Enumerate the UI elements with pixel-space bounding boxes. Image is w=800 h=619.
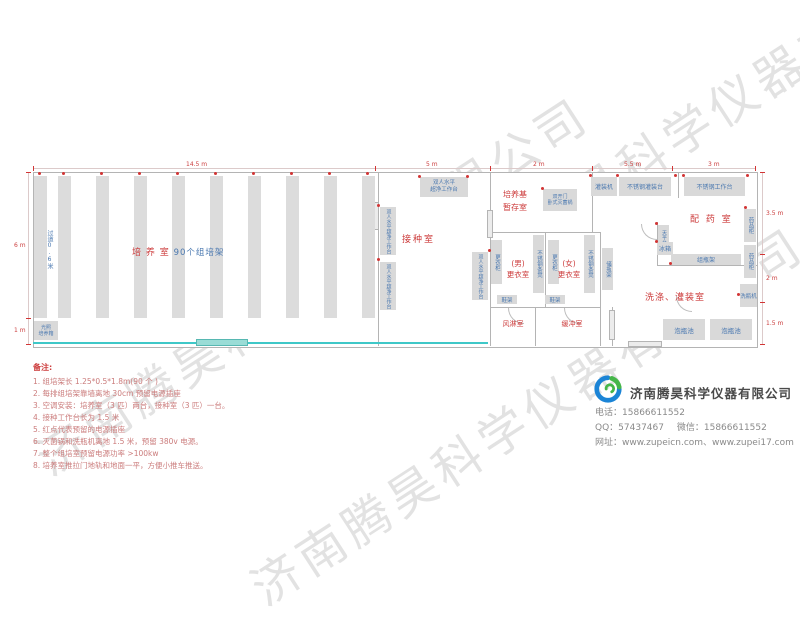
locker-male: 更衣柜 xyxy=(491,240,502,284)
note-item: 8. 培养室推拉门地轨和地面一平，方便小推车推送。 xyxy=(33,460,229,472)
front-glass-wall xyxy=(33,342,488,344)
double-door-autoclave: 双开门 卧式灭菌锅 xyxy=(543,189,577,211)
light-incubator: 光照 培养箱 xyxy=(34,321,58,340)
company-qq-wechat: QQ：57437467 微信：15866611552 xyxy=(595,420,767,433)
shoe-rack-male: 鞋架 xyxy=(497,295,517,304)
dim-right-washing: 2 m xyxy=(766,275,778,282)
clean-bench-right: 双人水平超净工作台 xyxy=(472,252,488,300)
culture-rack xyxy=(58,176,71,318)
bench-male: 不锈钢条凳 xyxy=(533,235,544,293)
air-shower-label: 风淋室 xyxy=(495,319,531,329)
female-changing-line1: (女) xyxy=(553,258,585,269)
note-item: 3. 空调安装：培养室（3 匹）两台，接种室（3 匹）一台。 xyxy=(33,400,229,412)
stainless-work-table: 不锈钢工作台 xyxy=(684,177,745,196)
medium-storage-label: 培养基 暂存室 xyxy=(494,188,536,214)
medium-storage-line2: 暂存室 xyxy=(494,201,536,214)
company-name: 济南腾昊科学仪器有限公司 xyxy=(630,383,792,402)
note-item: 1. 组培架长 1.25*0.5*1.8m(90 个 ) xyxy=(33,376,229,388)
dim-top-culture: 14.5 m xyxy=(186,161,207,168)
male-changing-label: (男) 更衣室 xyxy=(502,258,534,280)
dim-left-corridor: 1 m xyxy=(14,327,26,334)
stainless-filling-table: 不锈钢灌装台 xyxy=(619,177,671,196)
culture-rack xyxy=(96,176,109,318)
shoe-rack-female: 鞋架 xyxy=(545,295,565,304)
door-corridor xyxy=(609,310,615,340)
dim-top-filling: 5.5 m xyxy=(624,161,641,168)
drawing-sheet: { "watermark": { "text": "济南腾昊科学仪器有限公司" … xyxy=(0,0,800,600)
door-washing-south xyxy=(628,341,662,347)
notes-block: 备注: 1. 组培架长 1.25*0.5*1.8m(90 个 ) 2. 每排组培… xyxy=(33,362,229,472)
buffer-room-label: 缓冲室 xyxy=(552,319,592,329)
culture-room-label: 培 养 室 90个组培架 xyxy=(132,245,224,258)
note-item: 2. 每排组培架靠墙离地 30cm 预留电源插座 xyxy=(33,388,229,400)
inoculation-room-label: 接种室 xyxy=(402,232,435,245)
company-phone: 电话：15866611552 xyxy=(595,405,685,418)
male-changing-line1: (男) xyxy=(502,258,534,269)
company-web: 网址：www.zupeicn.com、www.zupei17.com xyxy=(595,435,794,448)
culture-rack xyxy=(286,176,299,318)
filling-machine: 灌装机 xyxy=(591,177,617,196)
light-incubator-line2: 培养箱 xyxy=(38,331,53,337)
washing-room-label: 洗涤、灌装室 xyxy=(645,290,705,303)
dim-top-storage: 2 m xyxy=(533,161,545,168)
note-item: 6. 灭菌锅和洗瓶机离地 1.5 米，预留 380v 电源。 xyxy=(33,436,229,448)
dim-top-inoculation: 5 m xyxy=(426,161,438,168)
dimension-line-top xyxy=(33,168,756,169)
clean-bench-left-1: 双人水平超净工作台 xyxy=(380,207,396,255)
dim-left-room: 6 m xyxy=(14,242,26,249)
culture-rack-count: 90个组培架 xyxy=(174,248,225,258)
notes-title: 备注: xyxy=(33,362,229,374)
web-label: 网址： xyxy=(595,438,622,448)
web-urls: www.zupeicn.com、www.zupei17.com xyxy=(622,438,794,448)
medicine-cabinet-2: 药品柜 xyxy=(744,245,756,278)
female-changing-label: (女) 更衣室 xyxy=(553,258,585,280)
medicine-cabinet-1: 药品柜 xyxy=(744,209,756,242)
culture-rack xyxy=(248,176,261,318)
bench-female: 不锈钢条凳 xyxy=(584,235,595,293)
aisle-width-label: 过道0.6米 xyxy=(45,230,53,282)
bottle-storage-rack: 储瓶架 xyxy=(602,248,613,290)
clean-bench-line1: 双人水平 xyxy=(433,180,455,187)
female-changing-line2: 更衣室 xyxy=(553,269,585,280)
soak-pool-2: 泡瓶池 xyxy=(710,319,752,340)
door-inoculation-east xyxy=(487,210,493,238)
preparation-room-label: 配 药 室 xyxy=(690,212,733,225)
medium-storage-line1: 培养基 xyxy=(494,188,536,201)
culture-rack xyxy=(362,176,375,318)
bottle-washer: 洗瓶机 xyxy=(740,284,757,307)
wechat-number: 15866611552 xyxy=(704,423,767,433)
note-item: 5. 红点代表预留的电源插座 xyxy=(33,424,229,436)
culture-rack xyxy=(324,176,337,318)
dim-right-prep: 3.5 m xyxy=(766,210,783,217)
culture-room-name: 培 养 室 xyxy=(132,248,170,258)
clean-bench-top: 双人水平 超净工作台 xyxy=(420,177,468,197)
qq-label: QQ： xyxy=(595,423,618,433)
wechat-label: 微信： xyxy=(677,423,704,433)
male-changing-line2: 更衣室 xyxy=(502,269,534,280)
autoclave-line2: 卧式灭菌锅 xyxy=(547,200,572,207)
sliding-door xyxy=(196,339,248,346)
qq-number: 57437467 xyxy=(618,423,664,433)
soak-pool-1: 泡瓶池 xyxy=(663,319,705,340)
clean-bench-left-2: 双人水平超净工作台 xyxy=(380,262,396,310)
note-item: 7. 整个组培室预留电源功率 >100kw xyxy=(33,448,229,460)
dim-right-pool: 1.5 m xyxy=(766,320,783,327)
dimension-line-right xyxy=(762,172,763,345)
phone-label: 电话： xyxy=(595,408,622,418)
dimension-line-left xyxy=(28,172,29,345)
company-logo-icon xyxy=(593,374,623,404)
dim-top-preparation: 3 m xyxy=(708,161,720,168)
culture-bottle-rack: 组瓶架 xyxy=(671,254,741,265)
clean-bench-line2: 超净工作台 xyxy=(430,187,458,194)
note-item: 4. 接种工作台长为 1.5 米 xyxy=(33,412,229,424)
phone-number: 15866611552 xyxy=(622,408,685,418)
